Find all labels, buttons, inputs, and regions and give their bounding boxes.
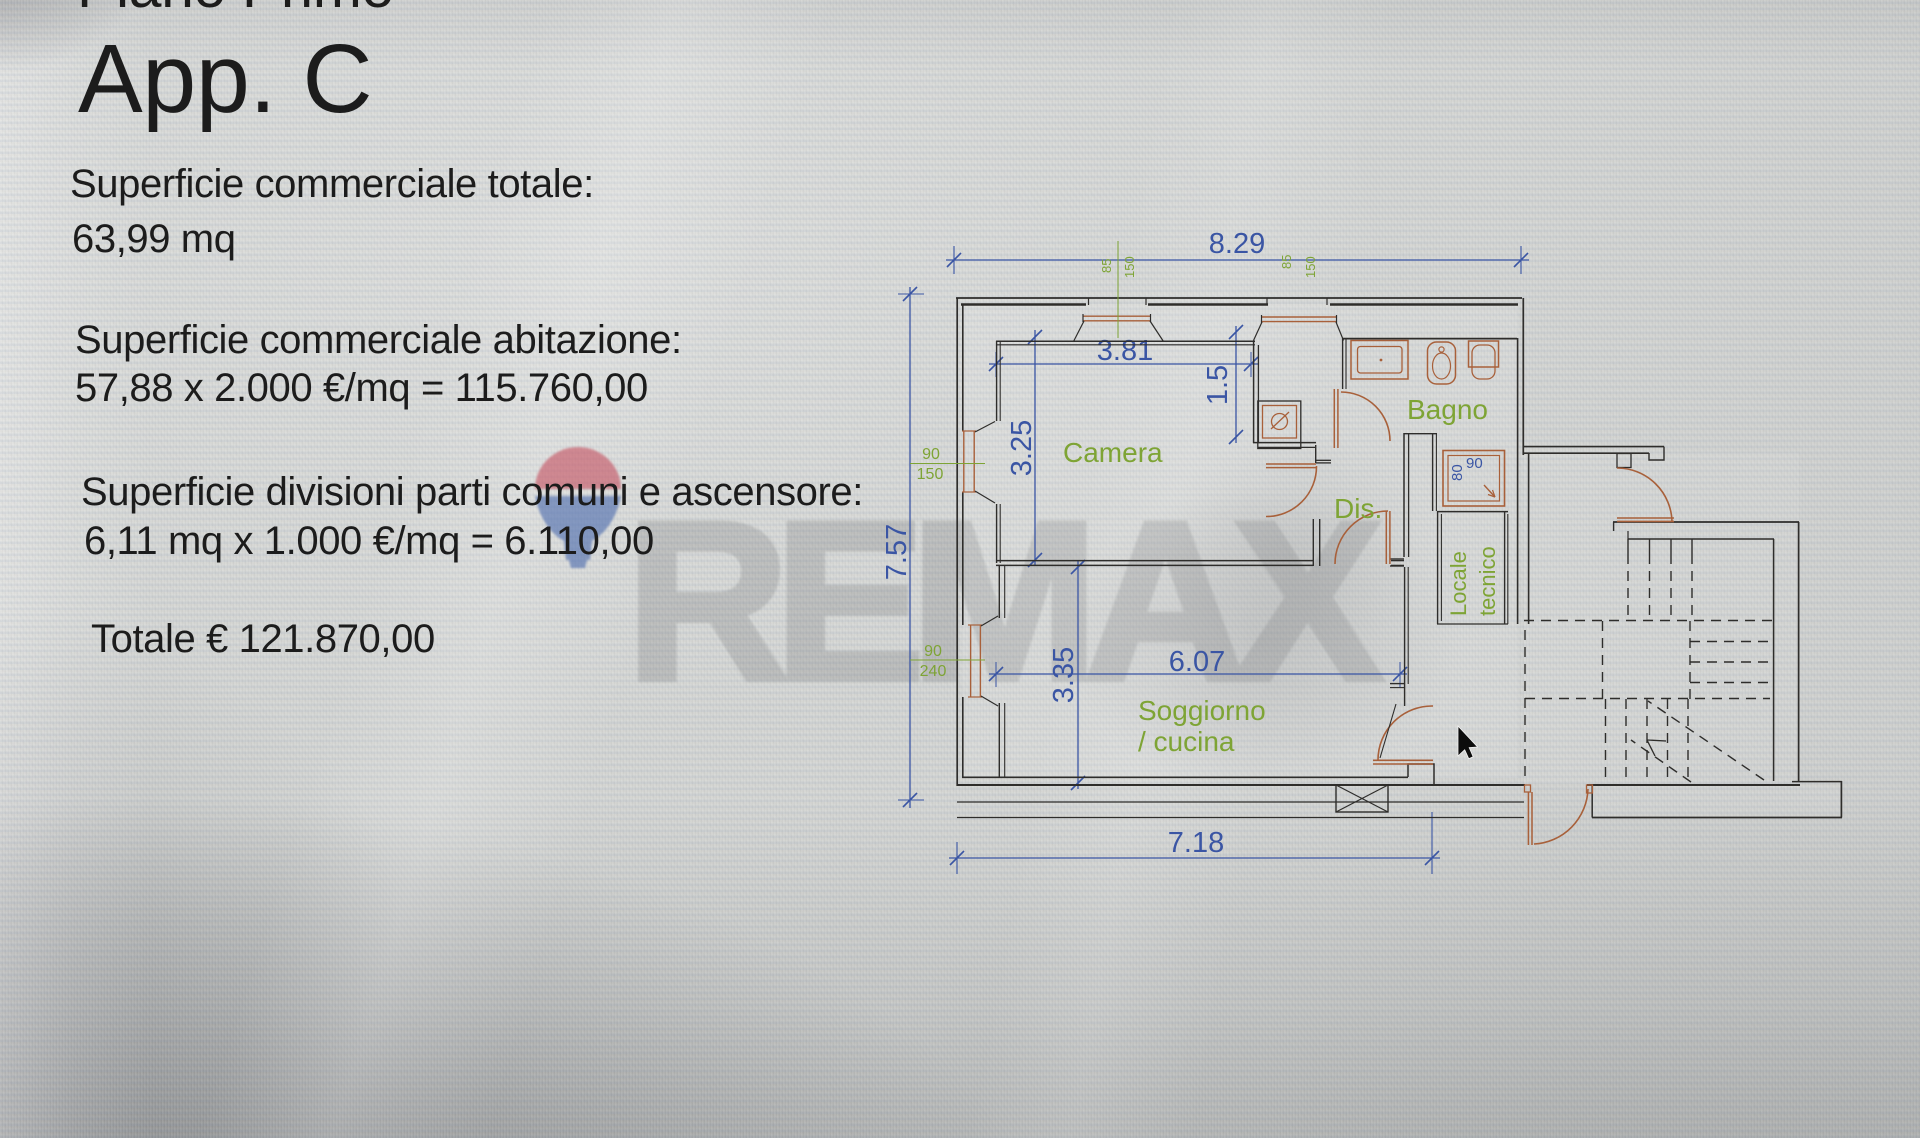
- svg-text:1.5: 1.5: [1202, 365, 1234, 405]
- svg-text:8.29: 8.29: [1209, 228, 1265, 260]
- svg-text:240: 240: [920, 663, 947, 680]
- svg-text:Bagno: Bagno: [1407, 394, 1488, 425]
- svg-text:80: 80: [1449, 464, 1466, 481]
- svg-text:7.18: 7.18: [1168, 827, 1224, 859]
- svg-text:150: 150: [1122, 256, 1137, 278]
- svg-text:85: 85: [1099, 259, 1114, 273]
- svg-text:3.25: 3.25: [1006, 420, 1038, 476]
- svg-text:90: 90: [922, 446, 940, 463]
- svg-text:3.81: 3.81: [1097, 335, 1153, 367]
- svg-text:Locale: Locale: [1446, 551, 1471, 616]
- svg-text:Dis.: Dis.: [1334, 493, 1382, 524]
- svg-text:3.35: 3.35: [1048, 647, 1080, 703]
- svg-text:6.07: 6.07: [1169, 646, 1225, 678]
- svg-text:85: 85: [1279, 255, 1294, 269]
- svg-text:150: 150: [917, 466, 944, 483]
- svg-text:7.57: 7.57: [881, 524, 913, 580]
- svg-text:90: 90: [924, 643, 942, 660]
- svg-text:/ cucina: / cucina: [1138, 726, 1235, 757]
- svg-text:tecnico: tecnico: [1475, 546, 1500, 616]
- svg-text:Soggiorno: Soggiorno: [1138, 695, 1266, 726]
- svg-text:90: 90: [1466, 455, 1483, 472]
- svg-text:Camera: Camera: [1063, 437, 1163, 468]
- svg-text:150: 150: [1303, 256, 1318, 278]
